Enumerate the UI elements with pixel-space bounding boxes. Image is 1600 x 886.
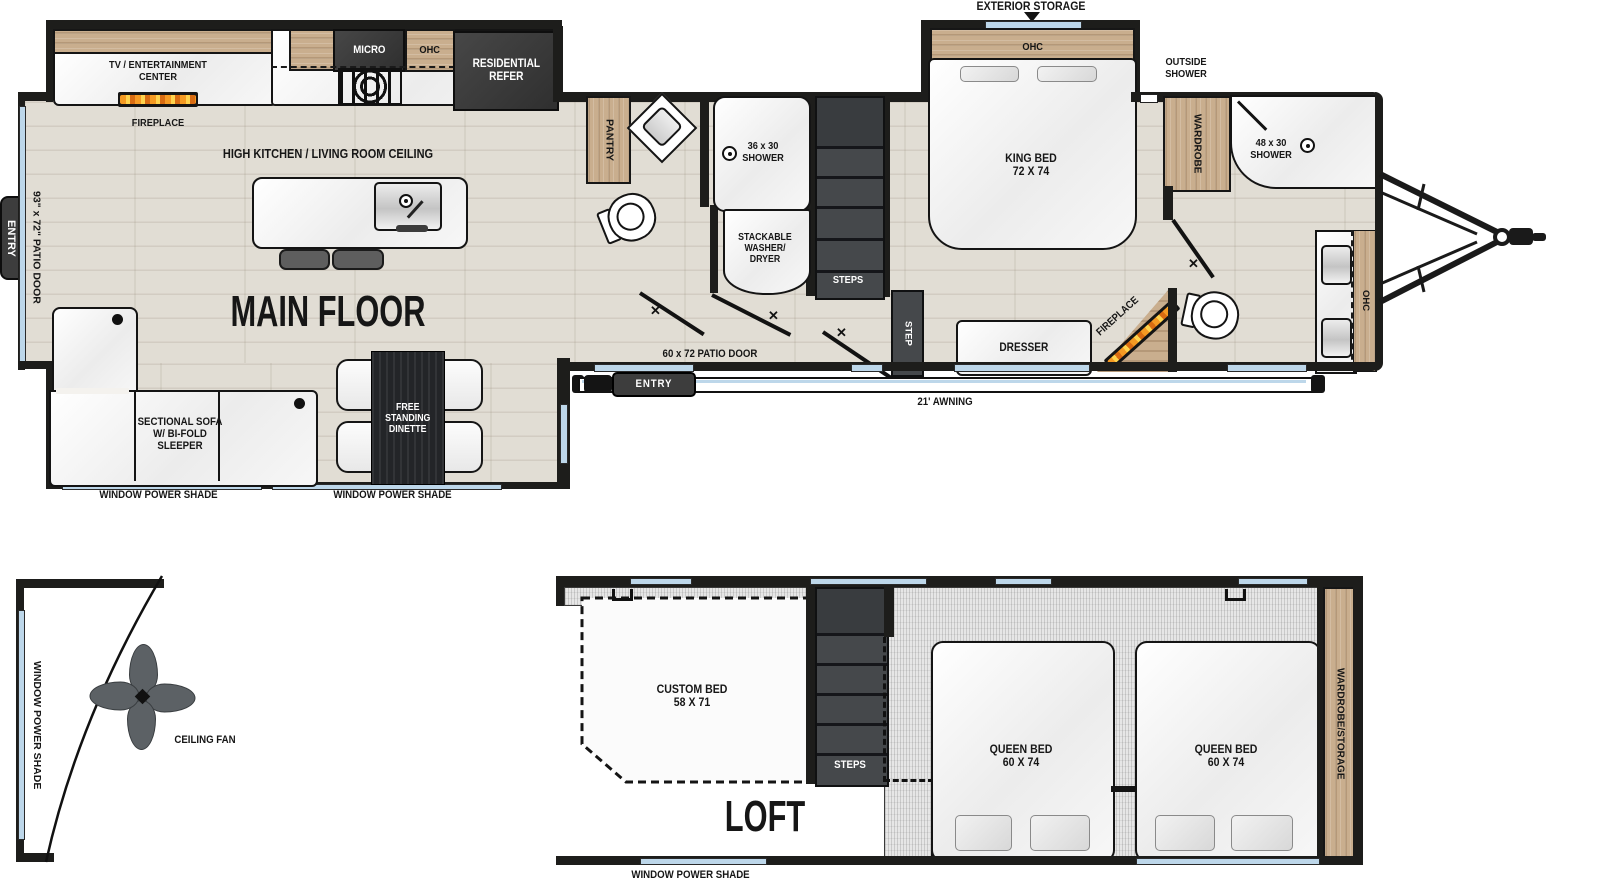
queen-pillow	[1030, 815, 1090, 851]
loft-railing	[883, 637, 886, 782]
staircase: STEPS	[815, 96, 885, 300]
counter-dashed-line	[271, 66, 455, 68]
king-pillow	[1037, 66, 1097, 82]
loft-window	[1238, 578, 1308, 585]
vanity-sink	[1321, 245, 1352, 285]
custom-bed-label: CUSTOM BED 58 X 71	[630, 683, 753, 709]
loft-title: LOFT	[695, 795, 835, 839]
shower-48-label: 48 x 30 SHOWER	[1240, 138, 1302, 161]
outside-shower-label: OUTSIDE SHOWER	[1151, 57, 1221, 80]
toilet-bowl-inner	[612, 198, 648, 234]
wardrobe: WARDROBE	[1163, 96, 1231, 192]
loft-railing	[884, 779, 934, 782]
loft-window	[640, 858, 767, 865]
entry-label: ENTRY	[636, 378, 673, 390]
refer-label: RESIDENTIAL REFER	[472, 58, 539, 83]
door-handle-icon: ✕	[836, 325, 847, 341]
vent-icon	[1225, 589, 1246, 601]
door-handle-icon: ✕	[650, 303, 661, 319]
shower-36-label: 36 x 30 SHOWER	[732, 141, 794, 164]
door-handle-icon: ✕	[1188, 256, 1199, 272]
kitchen-cabinet	[289, 29, 337, 71]
washer-dryer-label: STACKABLE WASHER/ DRYER	[730, 232, 800, 265]
residential-refrigerator: RESIDENTIAL REFER	[453, 31, 559, 111]
stair-landing	[817, 589, 887, 633]
micro-label: MICRO	[353, 44, 385, 56]
window	[1227, 364, 1307, 372]
ceiling-fan-label: CEILING FAN	[165, 734, 244, 746]
shower-head-icon	[1300, 138, 1315, 153]
sink-drain-icon	[399, 194, 413, 208]
dresser-label: DRESSER	[1000, 342, 1049, 355]
front-cap-window	[18, 610, 25, 840]
dinette-chair	[439, 421, 483, 473]
patio-door-60-label: 60 x 72 PATIO DOOR	[640, 348, 781, 360]
loft-steps-label: STEPS	[821, 759, 879, 771]
wardrobe-storage-label: WARDROBE/STORAGE	[1325, 589, 1355, 858]
slide-side-window	[560, 404, 568, 464]
fireplace-icon	[118, 92, 198, 107]
ceiling-note: HIGH KITCHEN / LIVING ROOM CEILING	[222, 148, 433, 162]
vanity-ohc-label: OHC	[1354, 231, 1376, 371]
sectional-sofa-chaise	[52, 307, 138, 399]
wall	[553, 26, 563, 102]
pantry: PANTRY	[586, 96, 631, 184]
sectional-label: SECTIONAL SOFA W/ BI-FOLD SLEEPER	[118, 416, 241, 452]
king-ohc-label: OHC	[1022, 42, 1043, 54]
wall	[1163, 186, 1173, 220]
pantry-label: PANTRY	[588, 98, 629, 182]
wall	[710, 205, 718, 293]
rear-patio-door	[19, 106, 26, 362]
sofa-seam-cover	[56, 388, 129, 394]
wall	[884, 587, 894, 637]
loft-window	[995, 578, 1052, 585]
wall	[1168, 288, 1177, 372]
loft-window-shade-label: WINDOW POWER SHADE	[627, 869, 755, 881]
vanity-ohc: OHC	[1353, 230, 1377, 372]
loft-staircase: STEPS	[815, 587, 889, 787]
outside-shower-box	[1140, 94, 1158, 103]
bed-divider	[1111, 786, 1136, 792]
wall	[1353, 576, 1363, 865]
bath-sink-basin	[641, 105, 683, 147]
steps-label: STEPS	[821, 275, 876, 287]
patio-door-93-label: 93" x 72" PATIO DOOR	[26, 140, 45, 355]
cooktop-icon	[338, 68, 402, 105]
dinette-label: FREE STANDING DINETTE	[385, 402, 430, 435]
stair-landing	[817, 98, 883, 146]
wall	[46, 20, 562, 29]
wall	[556, 576, 564, 606]
wall	[46, 20, 53, 102]
entry-step	[584, 375, 612, 393]
dinette-chair	[439, 359, 483, 411]
wall	[700, 95, 709, 207]
sofa-pillow-dot	[294, 398, 305, 409]
window	[954, 364, 1090, 372]
entry-badge: ENTRY	[612, 372, 696, 397]
king-pillow	[960, 66, 1019, 82]
toilet-bowl-inner	[1198, 298, 1231, 331]
island-faucet-icon	[396, 225, 428, 232]
queen-bed-label: QUEEN BED 60 X 74	[959, 743, 1082, 769]
loft-wardrobe-storage: WARDROBE/STORAGE	[1323, 587, 1357, 860]
loft-window	[810, 578, 927, 585]
window	[851, 364, 883, 372]
loft-window	[630, 578, 692, 585]
queen-pillow	[955, 815, 1012, 851]
king-bed-label: KING BED 72 X 74	[969, 152, 1094, 178]
queen-bed-label: QUEEN BED 60 X 74	[1164, 743, 1287, 769]
window-shade-label: WINDOW POWER SHADE	[95, 489, 223, 501]
kitchen-ohc-label: OHC	[420, 45, 441, 57]
window-shade-label: WINDOW POWER SHADE	[329, 489, 457, 501]
main-floor-title: MAIN FLOOR	[223, 290, 433, 334]
wall	[806, 587, 815, 784]
queen-pillow	[1155, 815, 1215, 851]
vent-icon	[612, 589, 633, 601]
awning-arm	[1311, 375, 1325, 393]
bar-stool	[279, 249, 330, 270]
fireplace-label: FIREPLACE	[123, 118, 193, 130]
trailer-tongue-hitch	[1378, 162, 1558, 314]
vanity-sink	[1321, 318, 1352, 358]
door-handle-icon: ✕	[768, 308, 779, 324]
awning-label: 21' AWNING	[888, 396, 1002, 408]
tv-entertainment-label: TV / ENTERTAINMENT CENTER	[79, 60, 237, 83]
bar-stool	[332, 249, 384, 270]
sofa-pillow-dot	[112, 314, 123, 325]
dinette-table: FREE STANDING DINETTE	[371, 351, 445, 485]
rv-floorplan: TV / ENTERTAINMENT CENTER FIREPLACE MICR…	[0, 0, 1600, 886]
queen-pillow	[1231, 815, 1293, 851]
loft-window	[1136, 858, 1320, 865]
wardrobe-label: WARDROBE	[1165, 98, 1229, 190]
entry-patio-door	[594, 364, 694, 372]
